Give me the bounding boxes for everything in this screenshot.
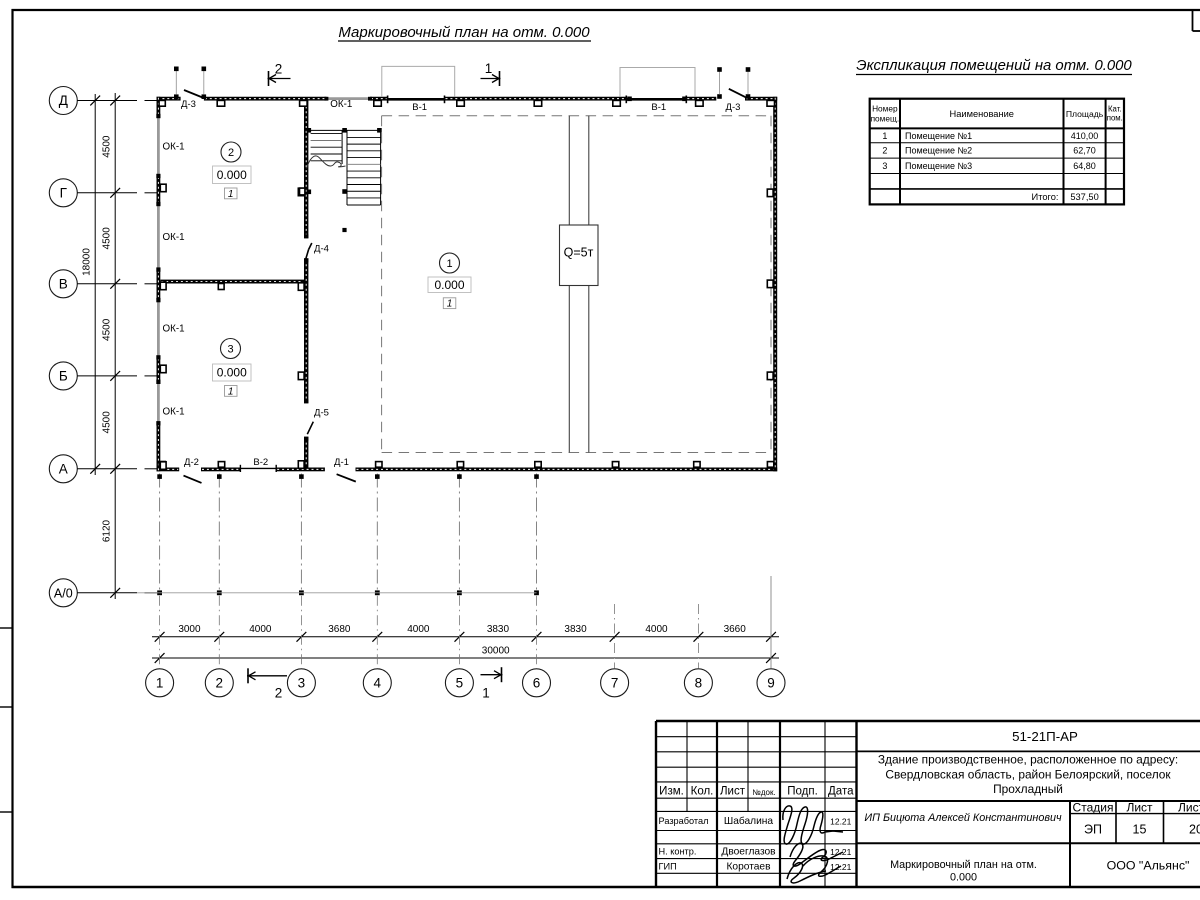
svg-text:Итого:: Итого: bbox=[1032, 192, 1059, 202]
svg-text:0.000: 0.000 bbox=[950, 872, 977, 884]
svg-text:2: 2 bbox=[216, 675, 224, 690]
svg-text:30000: 30000 bbox=[482, 645, 510, 656]
svg-text:2: 2 bbox=[228, 147, 234, 159]
svg-text:Г: Г bbox=[60, 185, 68, 200]
svg-text:3: 3 bbox=[298, 675, 306, 690]
svg-text:6120: 6120 bbox=[102, 519, 113, 542]
svg-text:537,50: 537,50 bbox=[1070, 192, 1098, 202]
svg-text:51-21П-АР: 51-21П-АР bbox=[1012, 729, 1078, 744]
svg-text:1: 1 bbox=[485, 61, 493, 76]
svg-text:Лист: Лист bbox=[1126, 801, 1153, 815]
svg-text:Подп.: Подп. bbox=[787, 786, 818, 798]
svg-text:3830: 3830 bbox=[487, 624, 510, 635]
svg-text:ГИП: ГИП bbox=[659, 862, 677, 872]
svg-text:Площадь: Площадь bbox=[1066, 109, 1104, 119]
svg-text:20: 20 bbox=[1189, 823, 1200, 837]
svg-text:5: 5 bbox=[456, 675, 464, 690]
svg-text:12.21: 12.21 bbox=[830, 847, 852, 857]
svg-text:Q=5т: Q=5т bbox=[564, 246, 594, 260]
svg-text:ИП Бицюта Алексей Константинов: ИП Бицюта Алексей Константинович bbox=[864, 812, 1062, 824]
svg-text:7: 7 bbox=[611, 675, 619, 690]
svg-text:62,70: 62,70 bbox=[1073, 146, 1096, 156]
svg-text:4500: 4500 bbox=[102, 411, 113, 434]
svg-text:В-1: В-1 bbox=[651, 102, 666, 113]
svg-text:Б: Б bbox=[59, 369, 68, 384]
svg-text:1: 1 bbox=[482, 686, 490, 701]
svg-text:2: 2 bbox=[275, 686, 283, 701]
svg-text:ОК-1: ОК-1 bbox=[163, 232, 185, 243]
svg-text:9: 9 bbox=[767, 675, 775, 690]
svg-text:помещ.: помещ. bbox=[871, 113, 900, 123]
svg-text:ОК-1: ОК-1 bbox=[163, 323, 185, 334]
svg-text:3: 3 bbox=[882, 161, 887, 171]
svg-text:Коротаев: Коротаев bbox=[726, 862, 770, 873]
svg-text:0.000: 0.000 bbox=[217, 366, 247, 380]
svg-text:А: А bbox=[59, 461, 68, 476]
svg-text:Лист: Лист bbox=[720, 786, 746, 798]
svg-text:ООО "Альянс": ООО "Альянс" bbox=[1107, 859, 1190, 873]
svg-text:Здание производственное, распо: Здание производственное, расположенное п… bbox=[878, 753, 1178, 767]
svg-text:4000: 4000 bbox=[407, 624, 430, 635]
svg-text:Помещение №1: Помещение №1 bbox=[905, 131, 972, 141]
svg-text:4000: 4000 bbox=[249, 624, 272, 635]
svg-text:Кол.: Кол. bbox=[691, 786, 714, 798]
svg-text:6: 6 bbox=[533, 675, 541, 690]
svg-text:1: 1 bbox=[446, 258, 452, 270]
svg-text:пом.: пом. bbox=[1107, 113, 1123, 122]
svg-text:ОК-1: ОК-1 bbox=[330, 99, 352, 110]
svg-text:Шабалина: Шабалина bbox=[724, 815, 774, 827]
svg-text:3680: 3680 bbox=[328, 624, 351, 635]
svg-text:Номер: Номер bbox=[872, 103, 898, 113]
svg-text:Свердловская область, район Бе: Свердловская область, район Белоярский, … bbox=[885, 768, 1171, 782]
svg-text:Помещение №2: Помещение №2 bbox=[905, 146, 972, 156]
svg-text:ОК-1: ОК-1 bbox=[163, 406, 185, 417]
svg-text:Д: Д bbox=[59, 93, 68, 108]
svg-text:Д-4: Д-4 bbox=[314, 244, 329, 255]
svg-text:Маркировочный план на отм.: Маркировочный план на отм. bbox=[890, 859, 1037, 871]
svg-text:18000: 18000 bbox=[82, 248, 93, 276]
svg-text:12.21: 12.21 bbox=[830, 817, 852, 827]
svg-text:Н. контр.: Н. контр. bbox=[659, 847, 697, 857]
svg-text:Прохладный: Прохладный bbox=[993, 782, 1063, 796]
svg-text:3: 3 bbox=[227, 343, 233, 355]
svg-text:Разработал: Разработал bbox=[659, 816, 709, 826]
svg-text:Д-3: Д-3 bbox=[181, 99, 196, 110]
svg-text:15: 15 bbox=[1133, 823, 1147, 837]
svg-text:4: 4 bbox=[374, 675, 382, 690]
svg-text:4000: 4000 bbox=[645, 624, 668, 635]
svg-text:3830: 3830 bbox=[564, 624, 587, 635]
svg-text:0.000: 0.000 bbox=[434, 278, 464, 292]
svg-text:Кат.: Кат. bbox=[1108, 104, 1122, 113]
svg-text:4500: 4500 bbox=[102, 227, 113, 250]
svg-text:В-2: В-2 bbox=[253, 457, 268, 468]
svg-text:4500: 4500 bbox=[102, 318, 113, 341]
svg-text:Д-5: Д-5 bbox=[314, 408, 329, 419]
svg-text:Двоеглазов: Двоеглазов bbox=[721, 847, 775, 858]
svg-text:2: 2 bbox=[882, 146, 887, 156]
svg-text:1: 1 bbox=[228, 189, 234, 200]
svg-text:В: В bbox=[59, 276, 68, 291]
svg-text:Д-3: Д-3 bbox=[726, 102, 741, 113]
svg-text:Помещение №3: Помещение №3 bbox=[905, 161, 972, 171]
svg-text:0.000: 0.000 bbox=[217, 168, 247, 182]
svg-text:4500: 4500 bbox=[102, 135, 113, 158]
svg-text:3000: 3000 bbox=[178, 624, 201, 635]
svg-text:В-1: В-1 bbox=[412, 102, 427, 113]
svg-text:3660: 3660 bbox=[724, 624, 747, 635]
svg-text:№док.: №док. bbox=[752, 788, 775, 797]
svg-text:Дата: Дата bbox=[828, 786, 854, 798]
svg-text:Изм.: Изм. bbox=[659, 786, 684, 798]
svg-text:2: 2 bbox=[275, 62, 283, 77]
svg-text:410,00: 410,00 bbox=[1071, 131, 1099, 141]
svg-text:64,80: 64,80 bbox=[1073, 161, 1096, 171]
svg-text:Наименование: Наименование bbox=[950, 109, 1014, 119]
svg-text:Д-1: Д-1 bbox=[334, 457, 349, 468]
svg-text:Экспликация помещений на отм.: Экспликация помещений на отм. 0.000 bbox=[856, 58, 1132, 74]
svg-text:А/0: А/0 bbox=[54, 586, 73, 600]
svg-text:1: 1 bbox=[228, 386, 234, 397]
svg-text:1: 1 bbox=[882, 131, 887, 141]
svg-text:Д-2: Д-2 bbox=[184, 457, 199, 468]
svg-text:Стадия: Стадия bbox=[1073, 801, 1114, 815]
svg-text:1: 1 bbox=[156, 675, 164, 690]
svg-text:ЭП: ЭП bbox=[1084, 823, 1102, 837]
svg-text:Маркировочный план на отм. 0.0: Маркировочный план на отм. 0.000 bbox=[338, 24, 590, 41]
svg-text:1: 1 bbox=[447, 299, 453, 310]
svg-text:ОК-1: ОК-1 bbox=[163, 141, 185, 152]
svg-text:8: 8 bbox=[695, 675, 703, 690]
svg-text:Листов: Листов bbox=[1178, 801, 1200, 815]
